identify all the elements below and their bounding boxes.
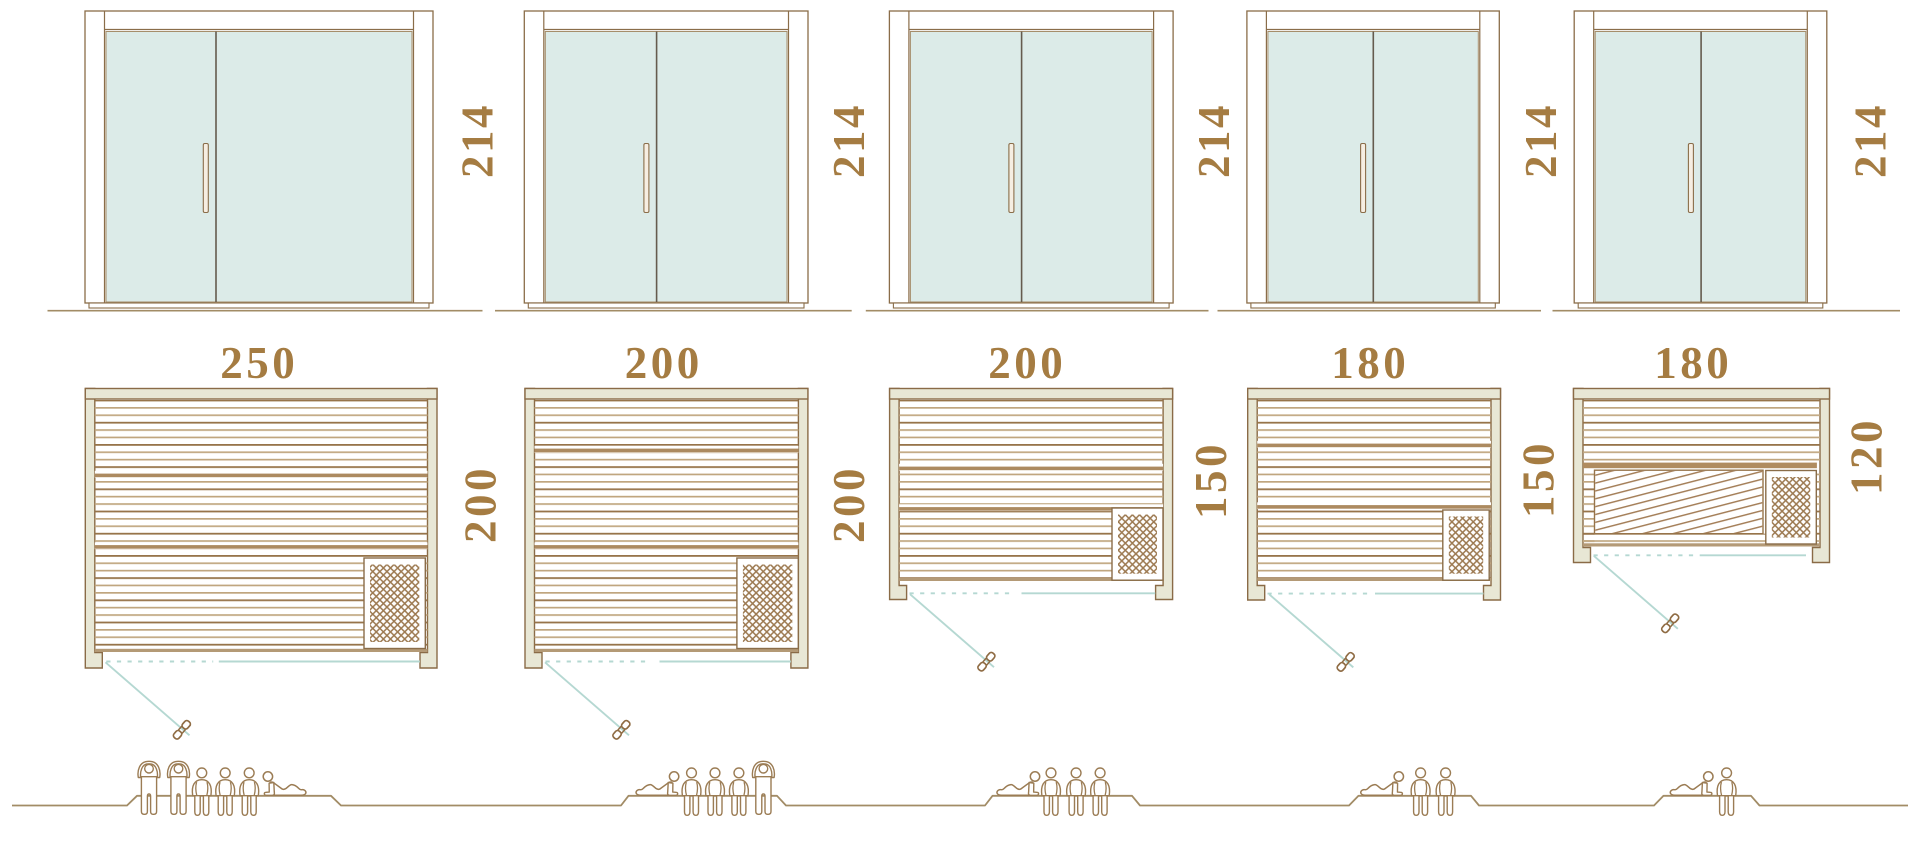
svg-text:214: 214 <box>452 103 502 178</box>
svg-text:200: 200 <box>625 338 703 388</box>
svg-text:180: 180 <box>1654 338 1732 388</box>
svg-text:200: 200 <box>456 465 506 543</box>
svg-text:120: 120 <box>1842 417 1892 495</box>
svg-text:214: 214 <box>1516 103 1566 178</box>
svg-text:150: 150 <box>1186 441 1236 519</box>
svg-text:214: 214 <box>824 103 874 178</box>
svg-text:214: 214 <box>1846 103 1896 178</box>
svg-text:214: 214 <box>1189 103 1239 178</box>
svg-text:150: 150 <box>1514 440 1564 518</box>
svg-text:250: 250 <box>220 338 298 388</box>
svg-text:180: 180 <box>1331 338 1409 388</box>
svg-text:200: 200 <box>988 338 1066 388</box>
svg-text:200: 200 <box>824 465 874 543</box>
